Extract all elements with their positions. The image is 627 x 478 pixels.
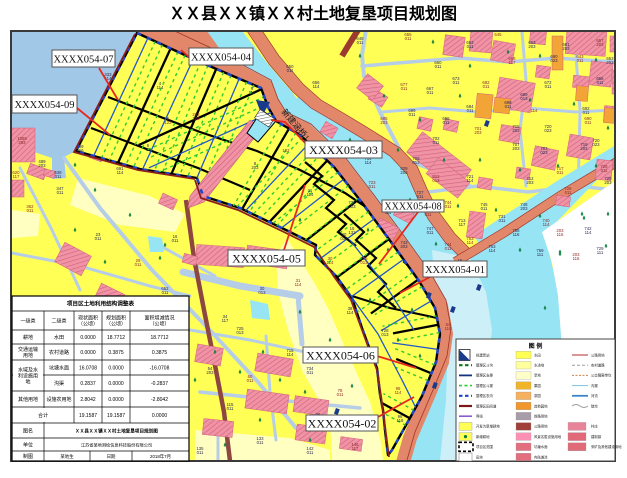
svg-text:114: 114 — [295, 282, 302, 287]
svg-text:0.3875: 0.3875 — [108, 350, 124, 356]
svg-text:011: 011 — [597, 80, 604, 85]
svg-text:023: 023 — [592, 142, 600, 147]
svg-text:011: 011 — [435, 64, 442, 69]
svg-text:农村道路: 农村道路 — [49, 349, 69, 356]
svg-text:114: 114 — [467, 240, 474, 245]
svg-text:XXXX054-03: XXXX054-03 — [309, 143, 378, 157]
svg-text:19.1587: 19.1587 — [107, 413, 125, 419]
svg-text:18.7712: 18.7712 — [150, 335, 168, 341]
svg-text:114: 114 — [467, 178, 474, 183]
svg-text:011: 011 — [467, 108, 474, 113]
svg-text:011: 011 — [401, 86, 408, 91]
svg-text:011: 011 — [483, 84, 490, 89]
svg-text:项目区范围: 项目区范围 — [476, 444, 494, 449]
svg-text:旱地: 旱地 — [534, 373, 541, 378]
svg-text:011: 011 — [453, 80, 460, 85]
svg-text:011: 011 — [197, 450, 204, 455]
svg-text:坑塘水面: 坑塘水面 — [49, 365, 69, 372]
svg-text:203: 203 — [512, 146, 520, 151]
svg-text:河流: 河流 — [591, 393, 598, 398]
svg-text:ＸＸ县ＸＸ镇ＸＸ村土地复垦项目规划图: ＸＸ县ＸＸ镇ＸＸ村土地复垦项目规划图 — [75, 428, 158, 435]
svg-text:011: 011 — [337, 392, 344, 397]
svg-text:0.3875: 0.3875 — [152, 350, 168, 356]
svg-text:2018年7月: 2018年7月 — [150, 453, 171, 460]
svg-text:011: 011 — [433, 140, 440, 145]
svg-text:011: 011 — [425, 212, 432, 217]
svg-text:118: 118 — [397, 418, 404, 423]
svg-text:0.0000: 0.0000 — [108, 397, 124, 403]
svg-text:沟渠: 沟渠 — [591, 383, 598, 388]
svg-text:118: 118 — [249, 90, 256, 95]
svg-text:114: 114 — [365, 160, 372, 165]
svg-text:203: 203 — [38, 163, 46, 168]
svg-text:114: 114 — [287, 352, 294, 357]
svg-text:114: 114 — [395, 390, 402, 395]
svg-text:203: 203 — [526, 180, 534, 185]
svg-text:耕地: 耕地 — [23, 334, 33, 341]
svg-text:0.0000: 0.0000 — [80, 335, 96, 341]
svg-text:一级类: 一级类 — [20, 318, 35, 325]
svg-text:0.0000: 0.0000 — [152, 413, 168, 419]
svg-text:2.8042: 2.8042 — [80, 397, 96, 403]
svg-text:011: 011 — [427, 90, 434, 95]
svg-text:011: 011 — [565, 190, 572, 195]
svg-text:114: 114 — [327, 260, 334, 265]
svg-text:二级类: 二级类 — [51, 318, 66, 325]
svg-text:011: 011 — [307, 450, 314, 455]
svg-text:011: 011 — [172, 238, 179, 243]
svg-text:公路用地: 公路用地 — [534, 424, 548, 429]
svg-text:（公顷）: （公顷） — [149, 321, 169, 328]
svg-text:界线: 界线 — [476, 414, 483, 419]
svg-text:013: 013 — [520, 96, 528, 101]
svg-text:011: 011 — [427, 230, 434, 235]
svg-text:011: 011 — [287, 68, 294, 73]
svg-text:116: 116 — [557, 232, 564, 237]
svg-text:203: 203 — [520, 206, 528, 211]
svg-text:水田: 水田 — [54, 334, 64, 341]
svg-text:水浇地: 水浇地 — [534, 363, 545, 368]
svg-text:203: 203 — [348, 204, 356, 209]
svg-text:011: 011 — [545, 84, 552, 89]
svg-text:013: 013 — [236, 330, 244, 335]
svg-text:013: 013 — [381, 332, 389, 337]
svg-text:011: 011 — [357, 40, 364, 45]
svg-text:011: 011 — [601, 168, 608, 173]
svg-text:011: 011 — [369, 184, 376, 189]
svg-text:合计: 合计 — [38, 412, 48, 419]
svg-text:18.7712: 18.7712 — [107, 335, 125, 341]
svg-text:011: 011 — [467, 44, 474, 49]
svg-text:铁路用地: 铁路用地 — [534, 414, 548, 419]
svg-text:-0.2837: -0.2837 — [151, 381, 168, 387]
svg-text:013: 013 — [360, 260, 368, 265]
svg-text:203: 203 — [400, 170, 408, 175]
svg-text:利设施用: 利设施用 — [18, 373, 38, 380]
svg-text:011: 011 — [409, 112, 416, 117]
svg-text:011: 011 — [227, 406, 234, 411]
svg-text:XXXX054-02: XXXX054-02 — [308, 416, 377, 430]
svg-text:203: 203 — [251, 165, 259, 170]
svg-text:104: 104 — [192, 116, 200, 121]
svg-text:116: 116 — [573, 256, 580, 261]
svg-text:203: 203 — [206, 370, 214, 375]
svg-text:11: 11 — [146, 147, 151, 152]
svg-text:水田: 水田 — [534, 352, 541, 357]
svg-text:203: 203 — [400, 244, 408, 249]
svg-text:011: 011 — [499, 218, 506, 223]
svg-text:整理区田间道: 整理区田间道 — [476, 403, 497, 408]
svg-text:011: 011 — [443, 120, 450, 125]
svg-text:203: 203 — [606, 60, 614, 65]
svg-text:图 例: 图 例 — [529, 342, 543, 350]
svg-text:开发为新增耕地: 开发为新增耕地 — [476, 424, 500, 429]
svg-text:645: 645 — [494, 32, 502, 37]
svg-text:114: 114 — [531, 108, 538, 113]
svg-text:其他园地: 其他园地 — [534, 403, 548, 408]
svg-text:266: 266 — [76, 148, 84, 153]
svg-text:-16.0708: -16.0708 — [150, 366, 170, 372]
svg-text:111: 111 — [537, 252, 544, 257]
svg-text:116: 116 — [513, 232, 520, 237]
svg-text:011: 011 — [257, 440, 264, 445]
svg-text:XXXX054-08: XXXX054-08 — [384, 202, 441, 213]
svg-text:011: 011 — [55, 174, 62, 179]
svg-text:203: 203 — [596, 42, 604, 47]
svg-text:011: 011 — [307, 370, 314, 375]
svg-text:制图: 制图 — [23, 453, 33, 460]
svg-text:203: 203 — [562, 46, 570, 51]
svg-text:0.2837: 0.2837 — [80, 381, 96, 387]
svg-text:111: 111 — [597, 250, 604, 255]
svg-text:203: 203 — [604, 180, 612, 185]
svg-text:风景名胜设施用地: 风景名胜设施用地 — [534, 434, 562, 439]
svg-text:203: 203 — [580, 146, 588, 151]
svg-text:0.0000: 0.0000 — [108, 366, 124, 372]
svg-text:规划面积: 规划面积 — [106, 315, 126, 322]
svg-text:117: 117 — [222, 318, 229, 323]
svg-text:坑塘水面: 坑塘水面 — [534, 444, 548, 449]
svg-text:地: 地 — [25, 379, 30, 386]
svg-text:011: 011 — [247, 378, 254, 383]
svg-text:011: 011 — [577, 58, 584, 63]
svg-text:图名: 图名 — [23, 428, 33, 435]
svg-text:-2.8042: -2.8042 — [151, 397, 168, 403]
svg-text:XXXX054-01: XXXX054-01 — [425, 265, 485, 276]
svg-text:陡坎: 陡坎 — [591, 403, 598, 408]
svg-text:203: 203 — [528, 44, 536, 49]
svg-text:XXXX054-09: XXXX054-09 — [14, 100, 74, 111]
svg-text:013: 013 — [412, 160, 420, 165]
svg-text:122: 122 — [164, 120, 172, 125]
svg-text:023: 023 — [540, 150, 548, 155]
svg-text:建制镇: 建制镇 — [591, 434, 602, 439]
svg-text:0.0000: 0.0000 — [80, 350, 96, 356]
svg-text:132: 132 — [348, 230, 356, 235]
svg-text:117: 117 — [352, 446, 359, 451]
svg-text:114: 114 — [543, 222, 550, 227]
svg-text:023: 023 — [544, 128, 552, 133]
svg-text:果园: 果园 — [534, 383, 541, 388]
svg-text:沟渠: 沟渠 — [54, 380, 64, 387]
svg-text:023: 023 — [550, 58, 558, 63]
svg-text:ＸＸ县ＸＸ镇ＸＸ村土地复垦项目规划图: ＸＸ县ＸＸ镇ＸＸ村土地复垦项目规划图 — [169, 4, 457, 23]
svg-text:011: 011 — [27, 208, 34, 213]
svg-text:117: 117 — [459, 222, 466, 227]
svg-text:203: 203 — [474, 130, 482, 135]
svg-text:现状面积: 现状面积 — [78, 315, 98, 322]
svg-text:16.0708: 16.0708 — [79, 366, 97, 372]
svg-text:其他用地: 其他用地 — [18, 396, 38, 403]
svg-text:114: 114 — [307, 192, 314, 197]
svg-text:203: 203 — [380, 120, 388, 125]
svg-text:203: 203 — [512, 128, 520, 133]
svg-text:整理区斗沟: 整理区斗沟 — [476, 363, 494, 368]
svg-text:单位: 单位 — [23, 442, 33, 449]
svg-text:整理区斗渠: 整理区斗渠 — [476, 383, 494, 388]
svg-text:（公顷）: （公顷） — [106, 321, 126, 328]
svg-text:114: 114 — [313, 84, 320, 89]
svg-text:011: 011 — [417, 194, 424, 199]
svg-text:XXXX054-06: XXXX054-06 — [306, 348, 375, 362]
svg-text:114: 114 — [489, 248, 496, 253]
svg-text:013: 013 — [432, 178, 440, 183]
svg-text:公交隔离带坎: 公交隔离带坎 — [591, 373, 612, 378]
svg-text:0.0000: 0.0000 — [108, 381, 124, 387]
svg-text:011: 011 — [405, 36, 412, 41]
svg-text:项目区土地利用结构调整表: 项目区土地利用结构调整表 — [67, 300, 135, 308]
svg-text:114: 114 — [157, 85, 164, 90]
svg-text:117: 117 — [13, 174, 20, 179]
svg-text:田块: 田块 — [476, 454, 483, 459]
svg-text:011: 011 — [481, 206, 488, 211]
svg-text:拟建泵站: 拟建泵站 — [476, 352, 490, 357]
svg-text:茶园: 茶园 — [534, 393, 541, 398]
svg-text:011: 011 — [445, 246, 452, 251]
svg-text:013: 013 — [258, 290, 266, 295]
svg-text:011: 011 — [162, 290, 169, 295]
svg-text:293: 293 — [18, 140, 26, 145]
svg-text:XXXX054-07: XXXX054-07 — [53, 54, 113, 65]
svg-text:011: 011 — [57, 190, 64, 195]
svg-text:公路用地: 公路用地 — [591, 352, 605, 357]
svg-text:农村道路: 农村道路 — [591, 363, 605, 368]
svg-text:011: 011 — [135, 262, 142, 267]
svg-text:XXXX054-04: XXXX054-04 — [191, 52, 252, 63]
svg-text:013: 013 — [340, 236, 348, 241]
svg-text:011: 011 — [445, 204, 452, 209]
svg-text:村庄: 村庄 — [591, 424, 598, 429]
svg-text:设施农用地: 设施农用地 — [46, 396, 71, 403]
svg-text:011: 011 — [95, 236, 102, 241]
svg-text:交通运输: 交通运输 — [18, 346, 38, 353]
svg-text:（公顷）: （公顷） — [78, 321, 98, 328]
svg-text:新增耕地: 新增耕地 — [476, 434, 490, 439]
svg-text:XXXX054-05: XXXX054-05 — [232, 251, 301, 265]
svg-text:某地生: 某地生 — [60, 453, 74, 460]
svg-text:114: 114 — [585, 230, 592, 235]
svg-text:水域及水: 水域及水 — [18, 367, 38, 374]
svg-text:011: 011 — [505, 104, 512, 109]
svg-text:整理区农沟: 整理区农沟 — [476, 393, 494, 398]
svg-text:内陆滩涂: 内陆滩涂 — [534, 454, 548, 459]
svg-text:011: 011 — [583, 110, 590, 115]
svg-text:采矿及其他建设用地: 采矿及其他建设用地 — [591, 444, 622, 449]
svg-text:19.1587: 19.1587 — [79, 413, 97, 419]
svg-text:整理区支渠: 整理区支渠 — [476, 373, 494, 378]
svg-text:用地: 用地 — [23, 352, 33, 359]
svg-text:江苏省某地测绘信息科技股份有限公司: 江苏省某地测绘信息科技股份有限公司 — [81, 442, 152, 449]
svg-text:114: 114 — [347, 310, 354, 315]
svg-text:011: 011 — [557, 170, 564, 175]
svg-text:116: 116 — [445, 326, 452, 331]
svg-text:114: 114 — [117, 170, 124, 175]
svg-text:117: 117 — [509, 60, 516, 65]
svg-text:122: 122 — [282, 148, 290, 153]
svg-text:011: 011 — [585, 120, 592, 125]
svg-text:面积增减情况: 面积增减情况 — [144, 315, 174, 322]
